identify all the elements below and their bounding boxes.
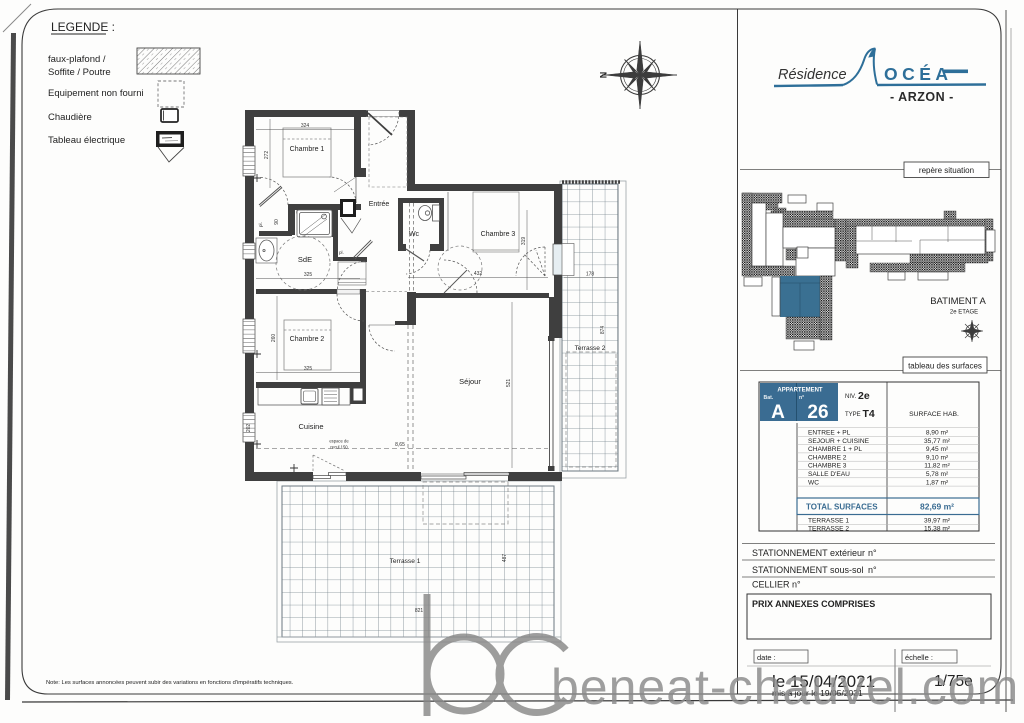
svg-text:5,78 m²: 5,78 m² (926, 471, 949, 478)
svg-text:faux-plafond /: faux-plafond / (48, 54, 106, 65)
svg-text:Chaudière: Chaudière (48, 112, 92, 123)
svg-text:WC: WC (808, 479, 819, 486)
svg-text:325: 325 (304, 366, 313, 372)
svg-text:Chambre 2: Chambre 2 (290, 336, 325, 343)
svg-text:CHAMBRE 2: CHAMBRE 2 (808, 454, 847, 461)
svg-text:APPARTEMENT: APPARTEMENT (777, 388, 823, 394)
svg-text:SEJOUR + CUISINE: SEJOUR + CUISINE (808, 438, 870, 445)
svg-text:repère situation: repère situation (919, 166, 974, 175)
svg-text:Equipement non fourni: Equipement non fourni (48, 88, 144, 99)
svg-text:n°: n° (799, 395, 804, 401)
svg-text:1,87 m²: 1,87 m² (926, 479, 949, 486)
svg-text:PRIX ANNEXES COMPRISES: PRIX ANNEXES COMPRISES (752, 599, 875, 609)
svg-text:ENTREE + PL: ENTREE + PL (808, 430, 851, 437)
svg-text:TOTAL SURFACES: TOTAL SURFACES (806, 503, 878, 512)
svg-text:A: A (771, 402, 785, 423)
svg-text:82,69 m²: 82,69 m² (920, 502, 954, 512)
svg-text:35,77 m²: 35,77 m² (924, 438, 951, 445)
svg-text:CHAMBRE 1 + PL: CHAMBRE 1 + PL (808, 446, 862, 453)
svg-text:11,82 m²: 11,82 m² (924, 463, 950, 470)
svg-text:CHAMBRE 3: CHAMBRE 3 (808, 463, 847, 470)
svg-text:SURFACE HAB.: SURFACE HAB. (909, 411, 959, 418)
svg-text:BATIMENT A: BATIMENT A (930, 296, 986, 307)
svg-text:Résidence: Résidence (778, 67, 847, 83)
svg-text:pl.: pl. (339, 250, 344, 255)
svg-text:T4: T4 (863, 408, 875, 420)
svg-text:SdE: SdE (298, 255, 312, 264)
svg-text:9,45 m²: 9,45 m² (926, 446, 949, 453)
svg-text:Chambre 3: Chambre 3 (481, 231, 516, 238)
svg-text:2e: 2e (858, 390, 870, 402)
svg-text:SALLE D'EAU: SALLE D'EAU (808, 471, 850, 478)
svg-text:821: 821 (415, 608, 424, 614)
svg-text:pl.: pl. (258, 222, 263, 227)
svg-text:Bat.: Bat. (764, 395, 774, 401)
svg-text:9,10 m²: 9,10 m² (926, 454, 949, 461)
svg-text:178: 178 (586, 272, 595, 278)
svg-text:521: 521 (506, 379, 512, 388)
svg-text:Cuisine: Cuisine (298, 422, 323, 431)
svg-text:325: 325 (304, 272, 313, 278)
svg-text:- ARZON -: - ARZON - (890, 90, 954, 104)
svg-text:n°: n° (868, 548, 877, 558)
svg-text:2e ETAGE: 2e ETAGE (950, 310, 978, 316)
svg-text:espace de: espace de (329, 439, 349, 444)
svg-text:260: 260 (271, 334, 277, 343)
svg-text:Soffite / Poutre: Soffite / Poutre (48, 67, 111, 78)
svg-text:TERRASSE 1: TERRASSE 1 (808, 518, 849, 525)
svg-text:N: N (598, 72, 608, 79)
svg-text:LEGENDE :: LEGENDE : (51, 20, 115, 34)
svg-text:90: 90 (274, 219, 280, 225)
svg-text:recul 150: recul 150 (330, 445, 348, 450)
svg-text:26: 26 (807, 402, 828, 423)
svg-text:STATIONNEMENT extérieur: STATIONNEMENT extérieur (752, 548, 865, 558)
svg-text:Note: Les surfaces annoncées p: Note: Les surfaces annoncées peuvent sub… (46, 680, 294, 686)
svg-text:Séjour: Séjour (459, 377, 481, 386)
svg-text:tableau des surfaces: tableau des surfaces (908, 362, 982, 371)
svg-text:Terrasse 1: Terrasse 1 (390, 558, 421, 565)
svg-text:319: 319 (521, 237, 527, 246)
svg-text:Entrée: Entrée (369, 201, 390, 208)
svg-text:874: 874 (600, 326, 606, 335)
svg-text:Tableau électrique: Tableau électrique (48, 135, 125, 146)
svg-text:8,65: 8,65 (395, 442, 405, 448)
svg-text:beneat-chauvel.com: beneat-chauvel.com (551, 659, 1019, 715)
svg-text:OCÉA: OCÉA (884, 63, 953, 84)
svg-text:272: 272 (264, 151, 270, 160)
svg-text:STATIONNEMENT sous-sol: STATIONNEMENT sous-sol (752, 565, 864, 575)
svg-text:NIV.: NIV. (845, 394, 856, 400)
svg-text:8,90 m²: 8,90 m² (926, 430, 949, 437)
svg-text:39,97 m²: 39,97 m² (924, 518, 951, 525)
svg-text:Wc: Wc (409, 231, 420, 238)
svg-text:CELLIER n°: CELLIER n° (752, 580, 801, 590)
svg-text:n°: n° (868, 565, 877, 575)
svg-text:15,38 m²: 15,38 m² (924, 526, 951, 533)
svg-text:487: 487 (502, 554, 508, 563)
svg-text:TERRASSE 2: TERRASSE 2 (808, 526, 849, 533)
svg-text:432: 432 (474, 271, 483, 277)
svg-text:202: 202 (246, 424, 252, 433)
svg-text:Terrasse 2: Terrasse 2 (575, 345, 606, 352)
svg-text:324: 324 (301, 123, 310, 129)
svg-text:Chambre 1: Chambre 1 (290, 146, 325, 153)
svg-text:TYPE: TYPE (845, 412, 861, 418)
